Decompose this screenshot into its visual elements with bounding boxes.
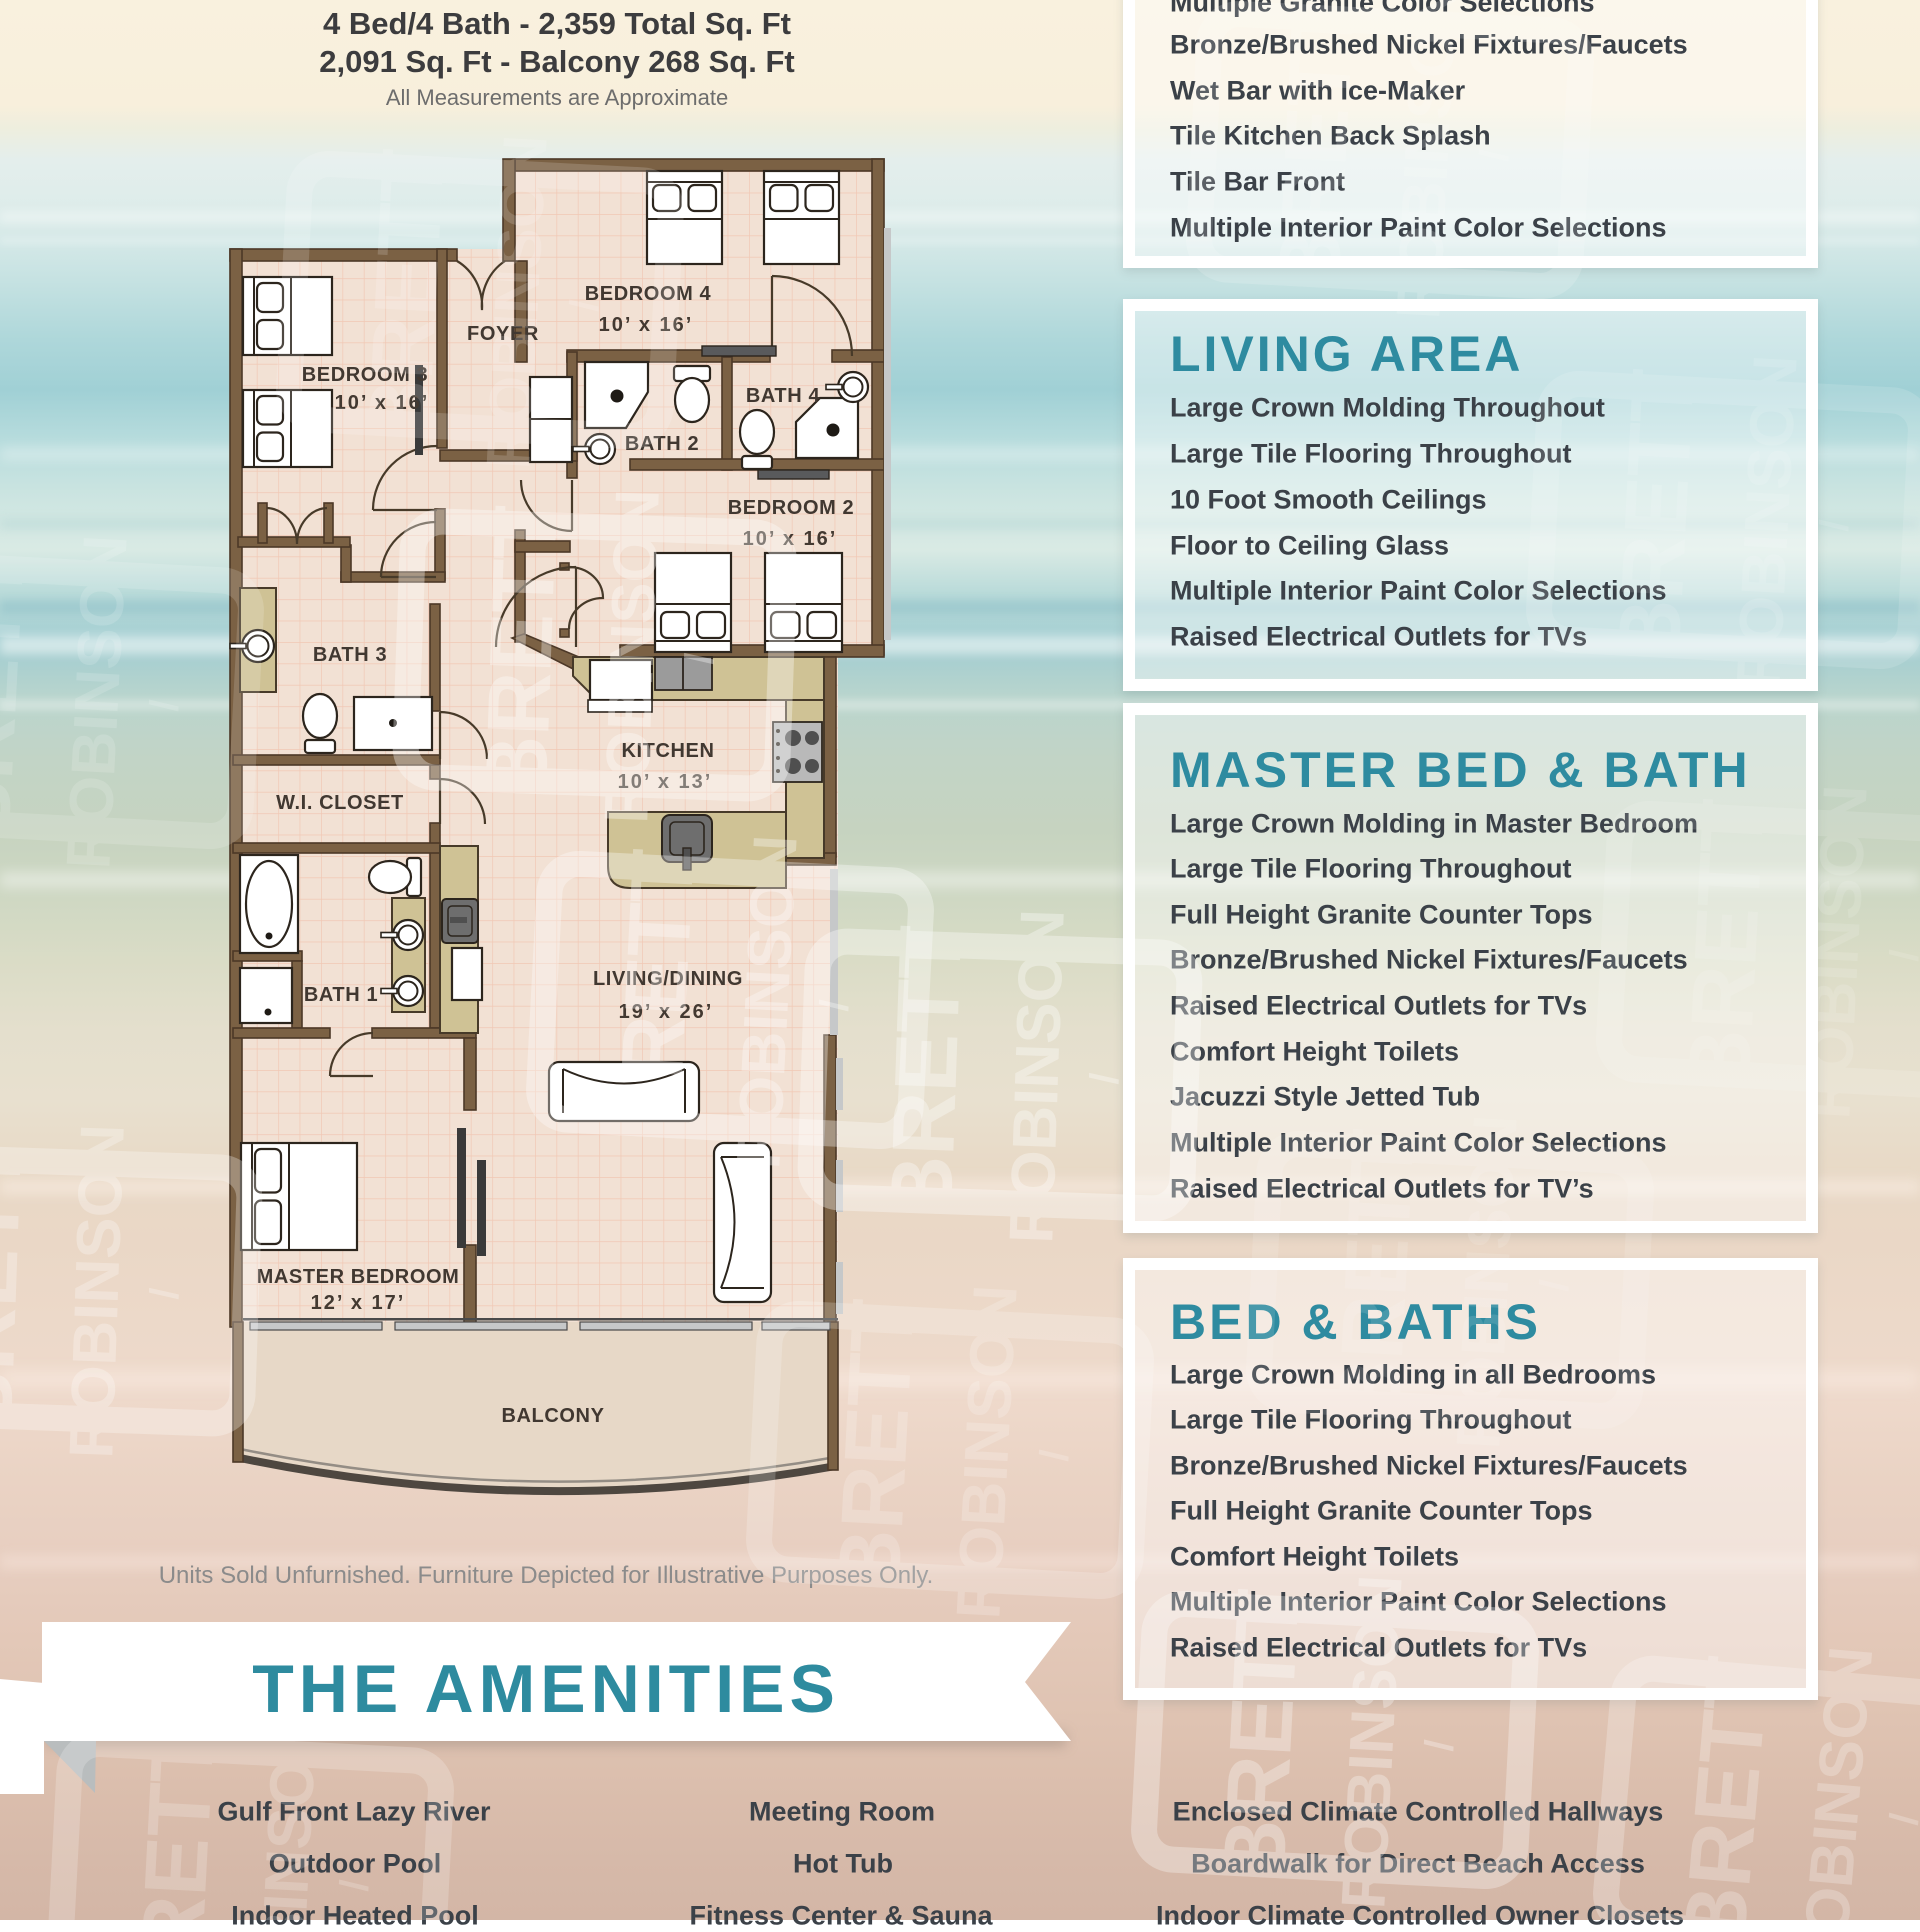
svg-text:ROBINSON: ROBINSON xyxy=(57,1123,138,1459)
svg-text:BRETT: BRETT xyxy=(1318,1127,1432,1425)
svg-text:/: / xyxy=(1033,1449,1078,1462)
svg-text:BRETT: BRETT xyxy=(0,547,43,845)
svg-text:/: / xyxy=(1882,1812,1920,1827)
svg-text:/: / xyxy=(1473,149,1518,162)
svg-text:BRETT: BRETT xyxy=(871,924,980,1221)
svg-text:/: / xyxy=(1533,1279,1578,1292)
svg-text:BRETT: BRETT xyxy=(0,1139,40,1436)
svg-text:/: / xyxy=(1083,1072,1127,1085)
svg-text:/: / xyxy=(1813,519,1858,532)
svg-text:BRETT: BRETT xyxy=(598,847,712,1145)
svg-text:BRETT: BRETT xyxy=(1258,0,1372,295)
svg-text:BRETT: BRETT xyxy=(818,1297,932,1595)
svg-text:/: / xyxy=(678,652,722,665)
svg-text:BRETT: BRETT xyxy=(1203,1587,1317,1885)
svg-text:BRETT: BRETT xyxy=(118,1727,232,1920)
svg-text:/: / xyxy=(143,1287,187,1300)
svg-text:/: / xyxy=(333,1879,378,1892)
svg-text:BRETT: BRETT xyxy=(1598,367,1712,665)
svg-text:/: / xyxy=(1883,949,1920,962)
svg-text:BRETT: BRETT xyxy=(348,147,462,445)
svg-text:/: / xyxy=(1418,1739,1463,1752)
svg-text:BRETT: BRETT xyxy=(1664,1653,1788,1920)
svg-text:/: / xyxy=(563,299,608,312)
svg-text:/: / xyxy=(143,699,188,712)
